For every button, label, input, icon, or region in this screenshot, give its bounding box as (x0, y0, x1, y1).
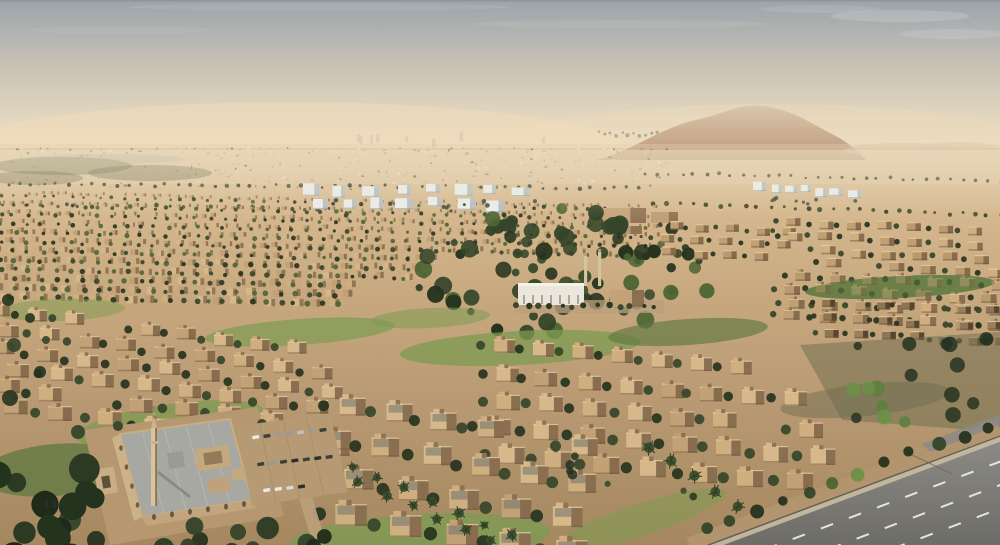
aerial-rendering-image (0, 0, 1000, 545)
image-top-edge (0, 0, 1000, 2)
mosque-parking-lot (236, 414, 348, 506)
atmospheric-haze (0, 150, 1000, 220)
page-number: 13 (44, 499, 58, 511)
rendering-page: 13 (0, 0, 1000, 545)
